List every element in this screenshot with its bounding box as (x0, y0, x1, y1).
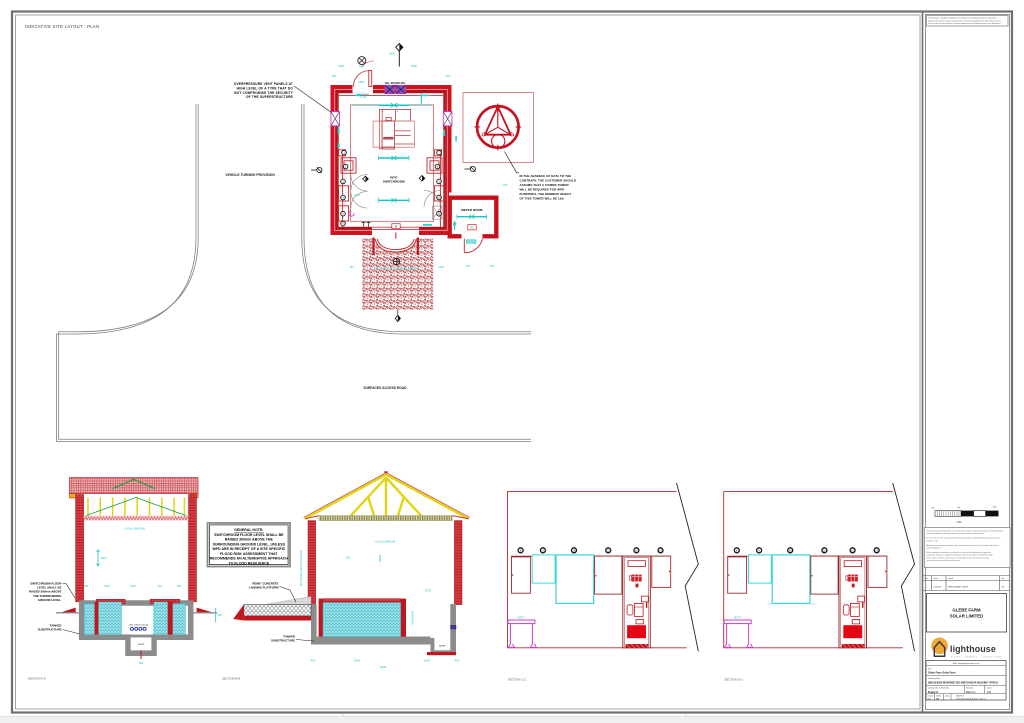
svg-text:SECTION B-B: SECTION B-B (222, 677, 240, 681)
svg-text:1970: 1970 (104, 585, 110, 588)
svg-text:450: 450 (311, 659, 316, 663)
svg-text:WILL BE REQUIRED FOR WPD: WILL BE REQUIRED FOR WPD (520, 188, 565, 192)
svg-text:450: 450 (84, 585, 89, 588)
svg-text:xx/05/23: xx/05/23 (934, 586, 942, 588)
svg-text:2600: 2600 (354, 659, 361, 663)
svg-text:4000: 4000 (380, 665, 387, 669)
svg-text:2No. 600x600 MVL: 2No. 600x600 MVL (385, 82, 406, 85)
svg-text:completion drawings or publish: completion drawings or published informa… (927, 554, 994, 557)
svg-text:INDICATIVE SITE LAYOUT : PLAN: INDICATIVE SITE LAYOUT : PLAN (25, 24, 99, 29)
svg-text:500: 500 (490, 264, 495, 268)
svg-text:associated works on site being: associated works on site being undertake… (927, 559, 961, 562)
svg-text:All dimensions in metres decim: All dimensions in metres decimals unless… (927, 544, 1000, 547)
svg-text:SURFACED ACCESS ROAD: SURFACED ACCESS ROAD (363, 386, 407, 390)
svg-text:METER ROOM: METER ROOM (461, 208, 483, 212)
svg-text:any working plans.: any working plans. (927, 547, 942, 550)
svg-text:DNO DESIGN REVIEWED 'DE9 SWITC: DNO DESIGN REVIEWED 'DE9 SWITCHGEAR BUIL… (928, 681, 999, 684)
svg-text:reproduced in whole or in part: reproduced in whole or in part or disclo… (928, 19, 1002, 22)
svg-text:2600: 2600 (101, 556, 107, 560)
svg-text:and specifications are based o: and specifications are based on data for… (927, 532, 985, 535)
svg-text:Drawing Title:: Drawing Title: (928, 677, 941, 680)
svg-text:900: 900 (332, 74, 337, 78)
svg-text:HIGH LEVEL OF A TYPE THAT DO: HIGH LEVEL OF A TYPE THAT DO (237, 86, 294, 90)
svg-text:ASSUME THAT A COMMS TOWER: ASSUME THAT A COMMS TOWER (520, 183, 570, 187)
svg-text:lighthouse: lighthouse (950, 644, 996, 654)
svg-text:MIN 300mm ABOVE GROUND: MIN 300mm ABOVE GROUND (299, 550, 303, 586)
svg-text:Where applicable, dimensions a: Where applicable, dimensions and details… (927, 551, 991, 554)
svg-text:150: 150 (346, 556, 351, 560)
svg-text:SWITCHROOM: SWITCHROOM (383, 180, 405, 184)
svg-text:5m: 5m (957, 507, 960, 509)
svg-text:OVERPRESSURE VENT PANELS AT: OVERPRESSURE VENT PANELS AT (234, 82, 293, 86)
svg-text:FLOOD RISK ASSESSMENT THAT: FLOOD RISK ASSESSMENT THAT (220, 552, 278, 556)
svg-text:Detail: Detail (948, 577, 954, 580)
svg-text:PRELIMINARY ISSUE: PRELIMINARY ISSUE (948, 585, 969, 588)
svg-text:forward to the attention of th: forward to the attention of the project … (927, 556, 990, 559)
svg-text:SUMP: SUMP (439, 645, 446, 647)
svg-text:Contract No. & Sheet No.: Contract No. & Sheet No. (928, 687, 950, 690)
svg-text:SWITCHROOM FLOOR LEVEL SHALL B: SWITCHROOM FLOOR LEVEL SHALL BE (214, 533, 284, 537)
svg-text:1:50: 1:50 (956, 520, 962, 524)
svg-text:600: 600 (446, 74, 451, 78)
svg-text:FD60: FD60 (358, 80, 365, 84)
svg-text:4No. 100mm DUCTS: 4No. 100mm DUCTS (129, 624, 149, 626)
svg-text:RAISED 300mm ABOVE THE: RAISED 300mm ABOVE THE (225, 538, 274, 542)
svg-text:CONTRARY, THE CUSTOMER SHOULD: CONTRARY, THE CUSTOMER SHOULD (520, 179, 577, 183)
svg-text:OF THIS TOWER WILL BE 15m: OF THIS TOWER WILL BE 15m (520, 197, 565, 201)
svg-text:4570: 4570 (354, 193, 360, 197)
svg-text:10m: 10m (993, 507, 997, 509)
svg-text:450: 450 (218, 613, 223, 617)
svg-text:This drawing and all informati: This drawing and all information in it a… (927, 530, 1003, 533)
svg-text:WPD ARE IN RECEIPT OF A SITE S: WPD ARE IN RECEIPT OF A SITE SPECIFIC (212, 547, 285, 551)
svg-text:verified on site.: verified on site. (927, 539, 939, 542)
svg-text:Web: www.lighthousedc.co.uk: Web: www.lighthousedc.co.uk (953, 662, 980, 665)
svg-text:2000: 2000 (389, 52, 395, 56)
svg-text:910: 910 (158, 585, 163, 588)
svg-text:VEHICLE TURNING PROVISION: VEHICLE TURNING PROVISION (225, 173, 275, 177)
svg-text:SURROUNDING GROUND LEVEL, UNLE: SURROUNDING GROUND LEVEL, UNLESS (213, 542, 286, 546)
svg-text:0m: 0m (932, 507, 935, 509)
svg-text:SUBSTRUCTURE: SUBSTRUCTURE (38, 628, 62, 632)
svg-text:Revision: Revision (966, 688, 973, 690)
svg-text:RWP: RWP (359, 66, 365, 68)
svg-text:450: 450 (177, 585, 182, 588)
svg-text:Glebe Farm Solar Farm: Glebe Farm Solar Farm (928, 671, 956, 674)
svg-text:2845: 2845 (424, 659, 431, 663)
svg-text:Do not scale from this drawing: Do not scale from this drawing unless fo… (927, 537, 1001, 540)
svg-text:M: M (395, 225, 397, 229)
svg-text:TO FLOOD RESILIENCE: TO FLOOD RESILIENCE (229, 561, 270, 565)
svg-text:CAD Ref: CAD Ref (956, 694, 964, 697)
svg-text:3000: 3000 (411, 64, 417, 68)
svg-text:700: 700 (503, 183, 508, 187)
svg-text:SOLAR . ENERGY . CONSULTING: SOLAR . ENERGY . CONSULTING (951, 655, 1003, 658)
svg-text:600: 600 (139, 661, 144, 665)
svg-text:450: 450 (455, 659, 460, 663)
svg-text:Rev: Rev (925, 578, 929, 580)
svg-text:1500 [MAX]: 1500 [MAX] (411, 611, 415, 625)
svg-text:+3.0m [2845.00]: +3.0m [2845.00] (375, 540, 396, 544)
svg-text:Date: Date (945, 694, 949, 697)
svg-text:NOT COMPROMISE THE SECURITY: NOT COMPROMISE THE SECURITY (234, 91, 294, 95)
svg-text:L.013: L.013 (360, 96, 367, 99)
svg-text:Scale: Scale (987, 688, 992, 690)
svg-text:Chk'd: Chk'd (936, 695, 941, 697)
svg-text:LANDING PLATFORM: LANDING PLATFORM (249, 586, 279, 590)
svg-text:18T RATED CONCRETE APRON: 18T RATED CONCRETE APRON (374, 266, 419, 270)
svg-text:500: 500 (466, 264, 471, 268)
svg-text:BATT: BATT (518, 615, 525, 619)
svg-text:SECTION A-A: SECTION A-A (28, 677, 46, 681)
svg-text:GD: GD (928, 699, 932, 701)
svg-text:GLEBE FARM: GLEBE FARM (952, 608, 981, 613)
svg-text:Do not scale from this drawing: Do not scale from this drawing. Use figu… (928, 22, 1001, 25)
svg-text:GROUND LEVEL.: GROUND LEVEL. (38, 598, 62, 602)
svg-text:By: By (1002, 578, 1004, 580)
svg-text:SUBSTRUCTURE: SUBSTRUCTURE (271, 639, 295, 643)
svg-text:LH-GLB-XX-00-DR-A-1008 - Figur: LH-GLB-XX-00-DR-A-1008 - Figure 8 (956, 698, 986, 701)
svg-text:Drawn: Drawn (928, 694, 933, 697)
svg-text:GENERAL NOTE:: GENERAL NOTE: (234, 528, 263, 532)
svg-text:3075: 3075 (425, 589, 432, 593)
svg-text:OF THE SUPERSTRUCTURE: OF THE SUPERSTRUCTURE (246, 95, 293, 99)
svg-text:IN THE ABSENCE OF DATA TO THE: IN THE ABSENCE OF DATA TO THE (520, 174, 572, 178)
svg-text:PURPOSES. THE MINIMUM HEIGHT: PURPOSES. THE MINIMUM HEIGHT (520, 192, 572, 196)
svg-text:This drawing is copyright of L: This drawing is copyright of Lighthouse … (928, 17, 997, 20)
svg-text:RECOMMENDS AN ALTERNATIVE APPR: RECOMMENDS AN ALTERNATIVE APPROACH (210, 557, 289, 561)
svg-text:1150: 1150 (438, 265, 444, 269)
svg-text:SOLAR LIMITED: SOLAR LIMITED (950, 613, 983, 618)
svg-text:750: 750 (349, 265, 354, 269)
svg-text:SECTION C-C: SECTION C-C (508, 678, 526, 682)
svg-text:1530: 1530 (130, 585, 136, 588)
svg-text:2000: 2000 (339, 64, 345, 68)
svg-text:SUMP: SUMP (138, 644, 145, 646)
svg-text:Site:: Site: (928, 667, 932, 670)
svg-text:M1: M1 (470, 226, 474, 230)
svg-text:+3.0m [2845.00]: +3.0m [2845.00] (124, 527, 145, 531)
svg-text:SECTION D-D: SECTION D-D (725, 678, 743, 682)
